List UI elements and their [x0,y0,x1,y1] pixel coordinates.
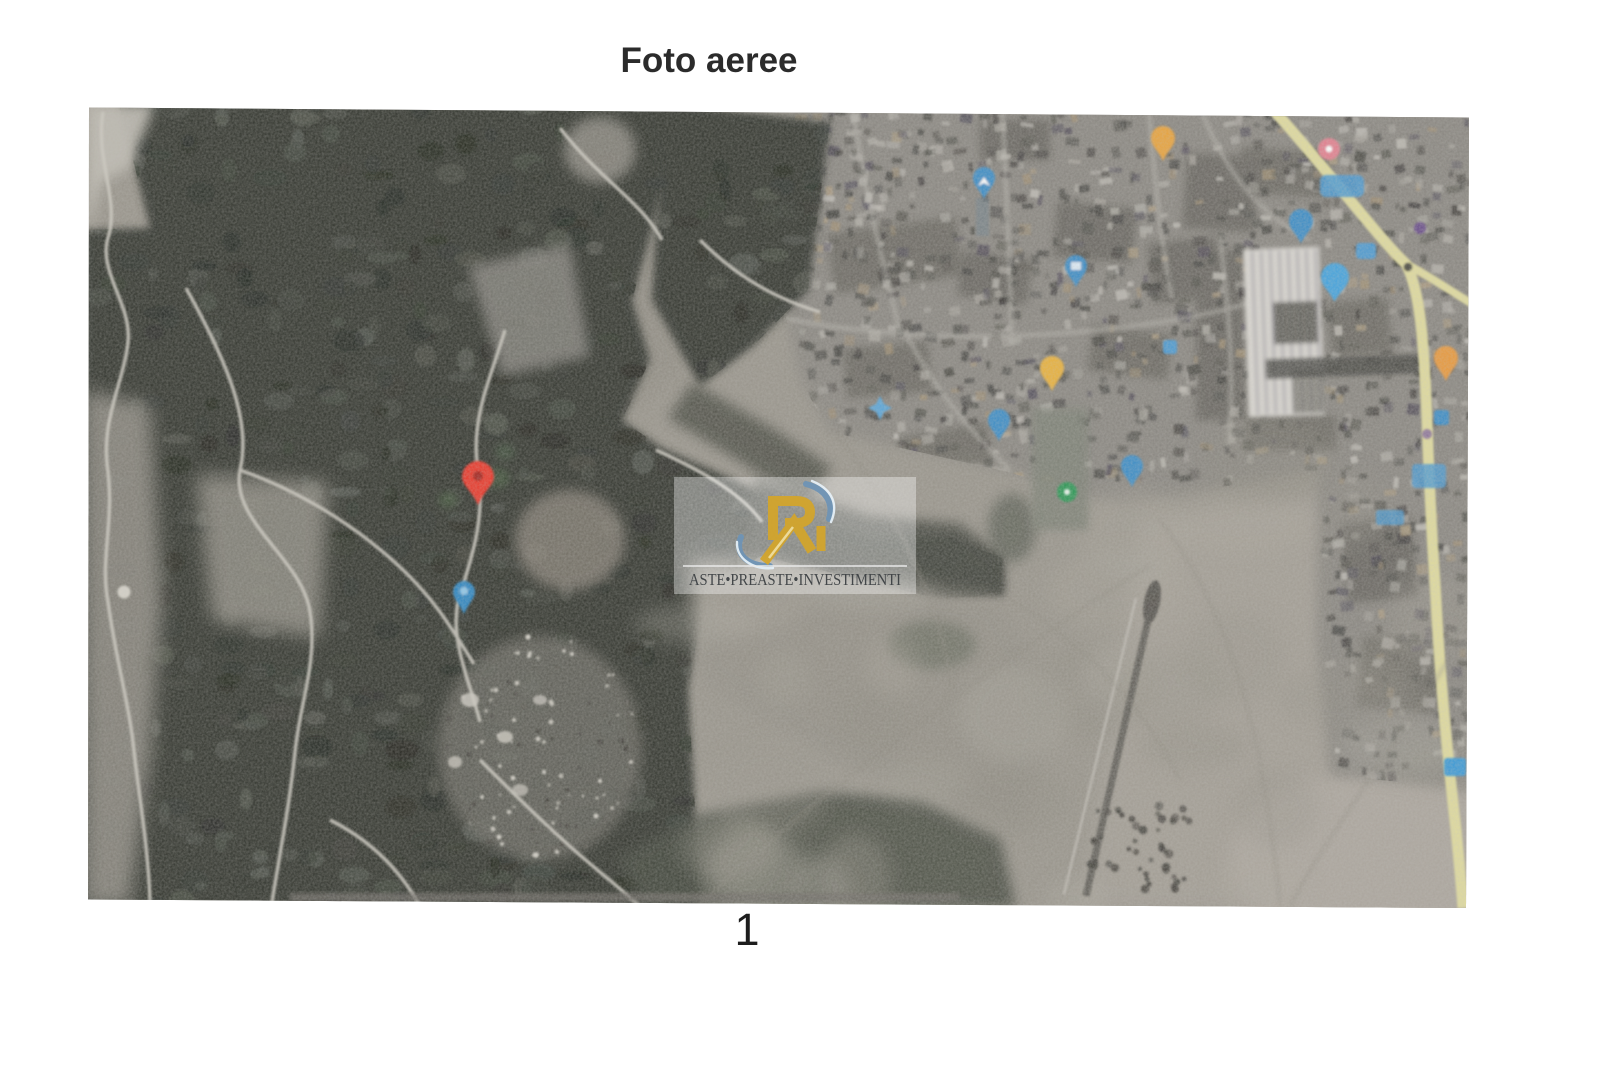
svg-text:Foto aeree: Foto aeree [621,41,798,80]
svg-text:1: 1 [734,904,759,955]
svg-text:ASTE•PREASTE•INVESTIMENTI: ASTE•PREASTE•INVESTIMENTI [689,570,901,589]
